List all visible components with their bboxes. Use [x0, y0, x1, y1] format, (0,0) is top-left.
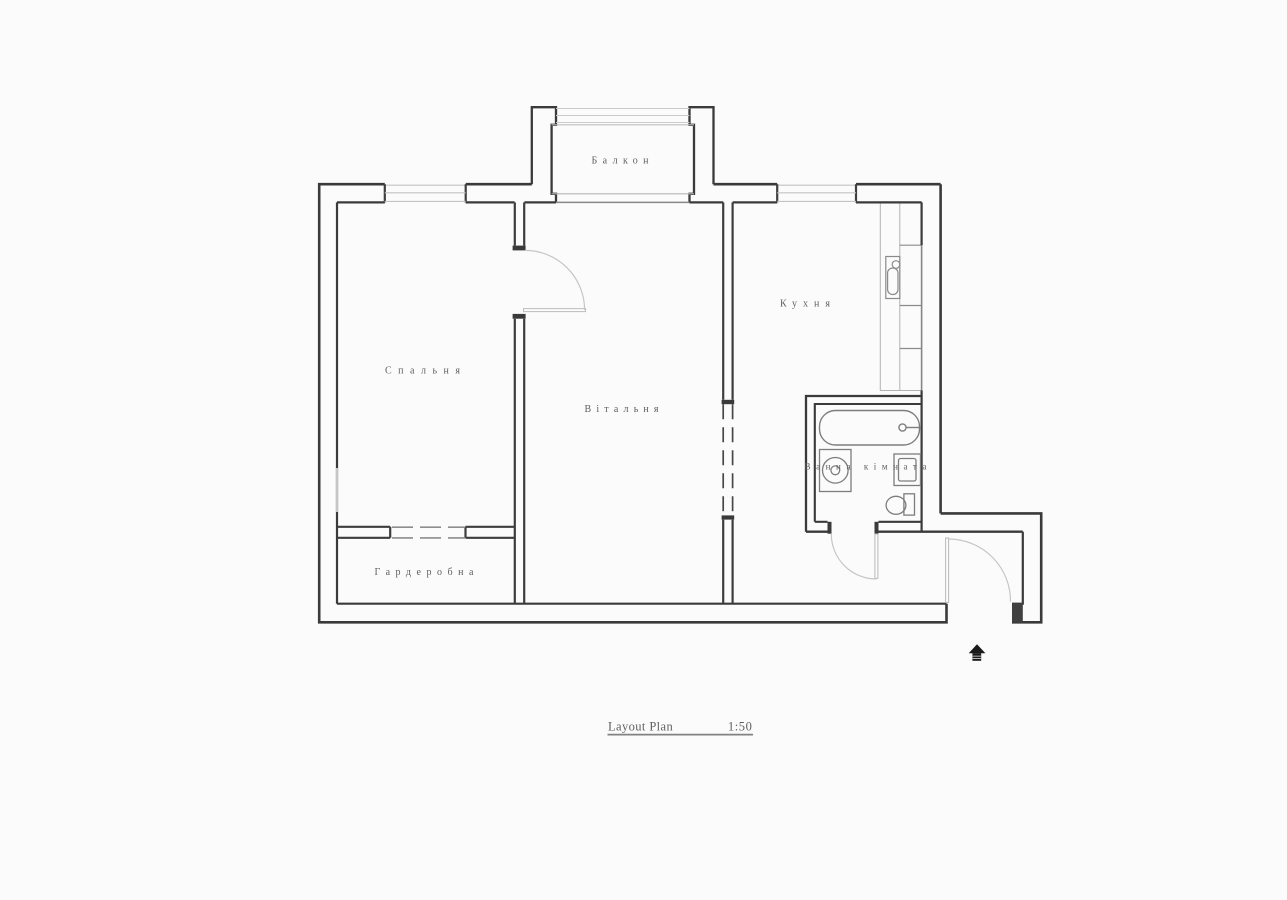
svg-text:Гардеробна: Гардеробна	[375, 567, 475, 578]
svg-text:1:50: 1:50	[728, 720, 753, 734]
svg-text:Спальня: Спальня	[385, 366, 460, 377]
svg-text:Layout Plan: Layout Plan	[608, 720, 674, 734]
svg-text:Балкон: Балкон	[592, 156, 650, 167]
svg-text:Вітальня: Вітальня	[585, 404, 659, 415]
svg-text:Кухня: Кухня	[780, 299, 830, 310]
